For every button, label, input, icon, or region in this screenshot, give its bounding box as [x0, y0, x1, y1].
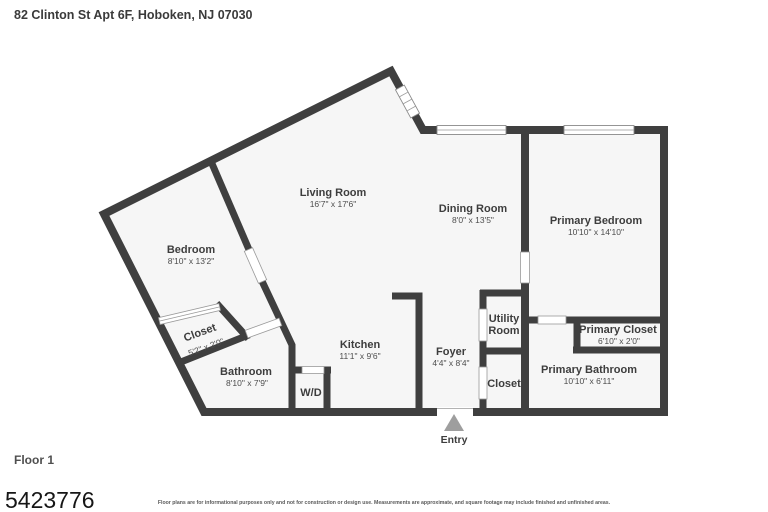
label-foyer-dims: 4'4" x 8'4"	[432, 358, 469, 368]
label-wd-name: W/D	[300, 387, 321, 399]
door-utility-room	[479, 309, 487, 341]
door-foyer-closet	[479, 367, 487, 399]
label-utility-room-line2: Room	[488, 325, 519, 337]
label-primary-closet-name: Primary Closet	[579, 324, 657, 336]
label-utility-room-line1: Utility	[489, 313, 520, 325]
label-primary-bedroom-name: Primary Bedroom	[550, 215, 643, 227]
plan-number: 5423776	[5, 487, 95, 512]
floor-label: Floor 1	[14, 453, 54, 467]
label-bedroom-dims: 8'10" x 13'2"	[168, 256, 215, 266]
floor-plan-drawing: Entry Living Room 16'7" x 17'6" Dining R…	[104, 71, 664, 446]
door-primary-bedroom	[521, 252, 530, 283]
entry-label: Entry	[441, 434, 468, 446]
label-kitchen-dims: 11'1" x 9'6"	[339, 351, 380, 361]
label-primary-closet-dims: 6'10" x 2'0"	[598, 336, 640, 346]
label-primary-bedroom-dims: 10'10" x 14'10"	[568, 227, 624, 237]
window-primary-bedroom	[564, 126, 634, 135]
window-dining	[437, 126, 506, 135]
page-title: 82 Clinton St Apt 6F, Hoboken, NJ 07030	[14, 8, 253, 22]
label-bathroom-name: Bathroom	[220, 366, 272, 378]
label-living-room-dims: 16'7" x 17'6"	[310, 199, 357, 209]
label-foyer-name: Foyer	[436, 346, 467, 358]
label-primary-bathroom-name: Primary Bathroom	[541, 364, 637, 376]
label-kitchen-name: Kitchen	[340, 339, 381, 351]
label-bedroom-name: Bedroom	[167, 244, 216, 256]
label-bathroom-dims: 8'10" x 7'9"	[226, 378, 268, 388]
door-wd	[302, 367, 324, 374]
floor-plan-page: 82 Clinton St Apt 6F, Hoboken, NJ 07030	[0, 0, 768, 512]
label-primary-bathroom-dims: 10'10" x 6'11"	[564, 376, 615, 386]
door-primary-bathroom	[538, 316, 566, 324]
label-living-room-name: Living Room	[300, 187, 367, 199]
floor-plan-canvas: 82 Clinton St Apt 6F, Hoboken, NJ 07030	[0, 0, 768, 512]
disclaimer-text: Floor plans are for informational purpos…	[158, 500, 611, 506]
entry-indicator: Entry	[437, 407, 473, 446]
label-foyer-closet-name: Closet	[487, 378, 521, 390]
label-dining-room-name: Dining Room	[439, 203, 508, 215]
label-dining-room-dims: 8'0" x 13'5"	[452, 215, 494, 225]
